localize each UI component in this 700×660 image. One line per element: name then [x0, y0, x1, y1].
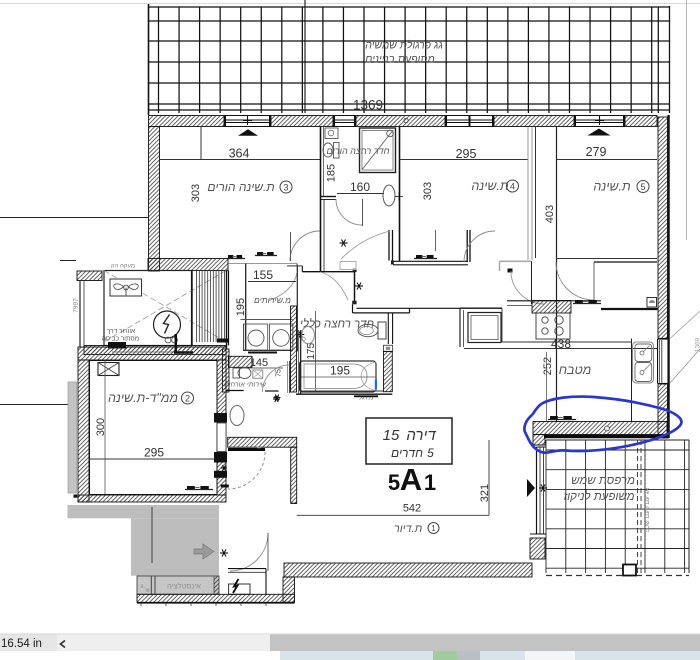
svg-text:מרפסת שמש: מרפסת שמש — [571, 475, 635, 487]
svg-text:אינסטלציה: אינסטלציה — [167, 582, 201, 591]
svg-text:ג.: ג. — [141, 583, 146, 590]
svg-text:שירותי אורחים: שירותי אורחים — [224, 382, 267, 389]
svg-text:195: 195 — [330, 364, 350, 378]
svg-text:2: 2 — [185, 393, 190, 403]
svg-text:295: 295 — [144, 446, 164, 460]
svg-text:1369: 1369 — [353, 98, 383, 113]
svg-text:7997: 7997 — [73, 298, 80, 313]
svg-text:ת.שינה הורים: ת.שינה הורים — [207, 180, 274, 194]
svg-text:403: 403 — [544, 205, 556, 223]
svg-text:155: 155 — [253, 268, 273, 282]
svg-text:אוורור דרך: אוורור דרך — [107, 328, 135, 335]
svg-text:ת.דיור: ת.דיור — [394, 523, 423, 535]
svg-text:מ.רגל: מ.רגל — [359, 394, 373, 402]
svg-text:15: 15 — [383, 427, 400, 444]
svg-text:ממ"ד-ת.שינה: ממ"ד-ת.שינה — [108, 391, 178, 405]
svg-text:185: 185 — [326, 164, 338, 182]
svg-text:ת.שינה: ת.שינה — [471, 179, 508, 193]
svg-text:3: 3 — [283, 182, 288, 192]
svg-text:175: 175 — [306, 343, 317, 360]
svg-text:279: 279 — [586, 145, 607, 159]
svg-text:מטבח: מטבח — [559, 363, 591, 377]
svg-text:16.54 in: 16.54 in — [1, 638, 42, 650]
svg-text:דירה: דירה — [406, 427, 436, 444]
svg-text:חדר רחצה כללי: חדר רחצה כללי — [300, 318, 374, 331]
svg-text:מסתור כביסה: מסתור כביסה — [102, 336, 139, 343]
svg-text:303: 303 — [190, 184, 202, 202]
svg-text:364: 364 — [229, 147, 250, 161]
svg-text:מ.שירותים: מ.שירותים — [254, 295, 291, 305]
svg-text:5: 5 — [640, 182, 645, 192]
svg-text:145: 145 — [250, 357, 268, 369]
svg-text:חדרים: חדרים — [391, 446, 423, 460]
svg-text:5: 5 — [427, 446, 434, 460]
svg-text:1369: 1369 — [695, 337, 700, 352]
svg-text:ת.שינה: ת.שינה — [593, 180, 630, 194]
svg-text:גג פרגולת שמשיה: גג פרגולת שמשיה — [365, 40, 443, 52]
svg-text:אג עם פעם שכפ: אג עם פעם שכפ — [644, 488, 651, 533]
svg-text:משופעת לניקוז: משופעת לניקוז — [563, 490, 634, 503]
svg-text:195: 195 — [235, 298, 247, 316]
svg-text:542: 542 — [403, 503, 421, 515]
svg-text:5: 5 — [388, 470, 400, 495]
svg-text:מעקה הק: מעקה הק — [111, 264, 135, 270]
svg-text:4: 4 — [510, 181, 515, 191]
svg-text:A: A — [400, 462, 422, 497]
svg-text:160: 160 — [350, 180, 370, 194]
svg-text:מתופעת בניינים: מתופעת בניינים — [365, 54, 434, 66]
svg-text:1: 1 — [424, 470, 436, 495]
svg-text:חדר רחצה הורים: חדר רחצה הורים — [327, 146, 390, 156]
svg-text:252: 252 — [542, 357, 554, 375]
svg-text:1: 1 — [431, 524, 436, 533]
svg-text:75: 75 — [276, 369, 283, 377]
svg-text:295: 295 — [456, 147, 477, 161]
svg-text:303: 303 — [422, 182, 434, 200]
